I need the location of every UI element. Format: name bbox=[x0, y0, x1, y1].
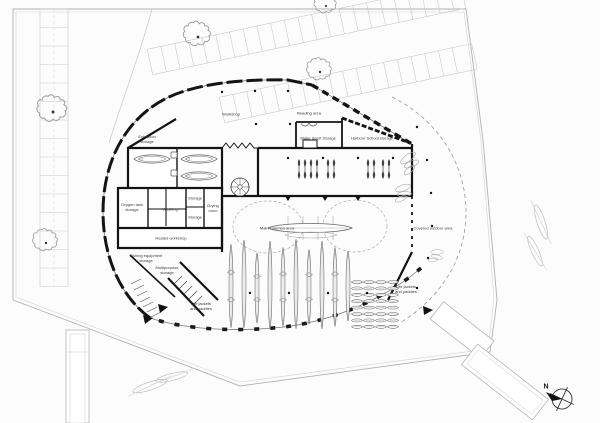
label-harbour-school-storage: Harbour School storage bbox=[351, 136, 393, 141]
outdoor-sketches bbox=[393, 149, 446, 266]
plan-canvas bbox=[0, 0, 600, 423]
floor-plan-drawing: Workshop Reading area Water Sport storag… bbox=[0, 0, 600, 423]
bush-icon bbox=[426, 245, 446, 267]
tree-icon bbox=[307, 58, 332, 80]
access-road bbox=[109, 9, 152, 143]
wash-basin-icon bbox=[181, 155, 217, 163]
label-oxygen-tank-storage: Oxygen tank storage bbox=[120, 202, 144, 212]
folding-partition bbox=[222, 143, 258, 148]
bush-icon bbox=[397, 149, 421, 177]
label-exhibition-storage: Exhibition storage bbox=[136, 134, 158, 144]
parking-left bbox=[40, 9, 68, 287]
label-reading-area: Reading area bbox=[297, 111, 321, 116]
label-storage-upper: Storage bbox=[188, 196, 202, 201]
boat-racks bbox=[228, 239, 350, 329]
label-life-jackets-left: Life jackets and paddles bbox=[189, 301, 213, 311]
label-water-sport-storage: Water Sport storage bbox=[300, 136, 336, 141]
label-drying-room: Drying room bbox=[206, 203, 220, 213]
label-multipurpose-storage: Multipurpose storage bbox=[154, 265, 180, 275]
pier-left bbox=[66, 330, 89, 423]
wash-basin-icon bbox=[181, 172, 217, 180]
tree-icon bbox=[183, 21, 210, 45]
kayak-icon bbox=[126, 375, 174, 397]
spiral-stair-icon bbox=[231, 178, 249, 196]
bush-icon bbox=[393, 181, 413, 205]
label-fishing-equipment-storage: Fishing equipment storage bbox=[129, 253, 163, 263]
parking-band-lower bbox=[219, 44, 477, 123]
label-north: N bbox=[543, 384, 548, 393]
label-workshop: Workshop bbox=[222, 112, 240, 117]
ramp-hatch bbox=[131, 279, 161, 317]
north-arrow bbox=[545, 382, 580, 417]
paddle-racks bbox=[298, 159, 390, 179]
parking-band-upper bbox=[147, 0, 465, 75]
label-storage-lower: Storage bbox=[188, 215, 202, 220]
label-life-jackets-right: Life jackets and paddles bbox=[394, 284, 418, 294]
label-main-common-area: Main common area bbox=[260, 226, 294, 231]
label-heated-workshop: Heated workshop bbox=[155, 236, 186, 241]
kayak-icon bbox=[150, 368, 194, 385]
tree-icon bbox=[33, 229, 58, 251]
label-covered-outdoor-area: Covered outdoor area bbox=[414, 226, 453, 231]
jetty-right bbox=[430, 302, 548, 420]
kayak-icon bbox=[523, 230, 547, 272]
site-layer bbox=[13, 0, 552, 423]
tree-icon bbox=[314, 0, 336, 13]
wash-basin-icon bbox=[134, 155, 170, 163]
kayak-icon bbox=[530, 198, 552, 246]
label-washing: Washing bbox=[162, 207, 177, 212]
canoe-stacks bbox=[352, 281, 399, 329]
canopy-columns bbox=[416, 126, 433, 289]
tree-icon bbox=[37, 95, 67, 122]
